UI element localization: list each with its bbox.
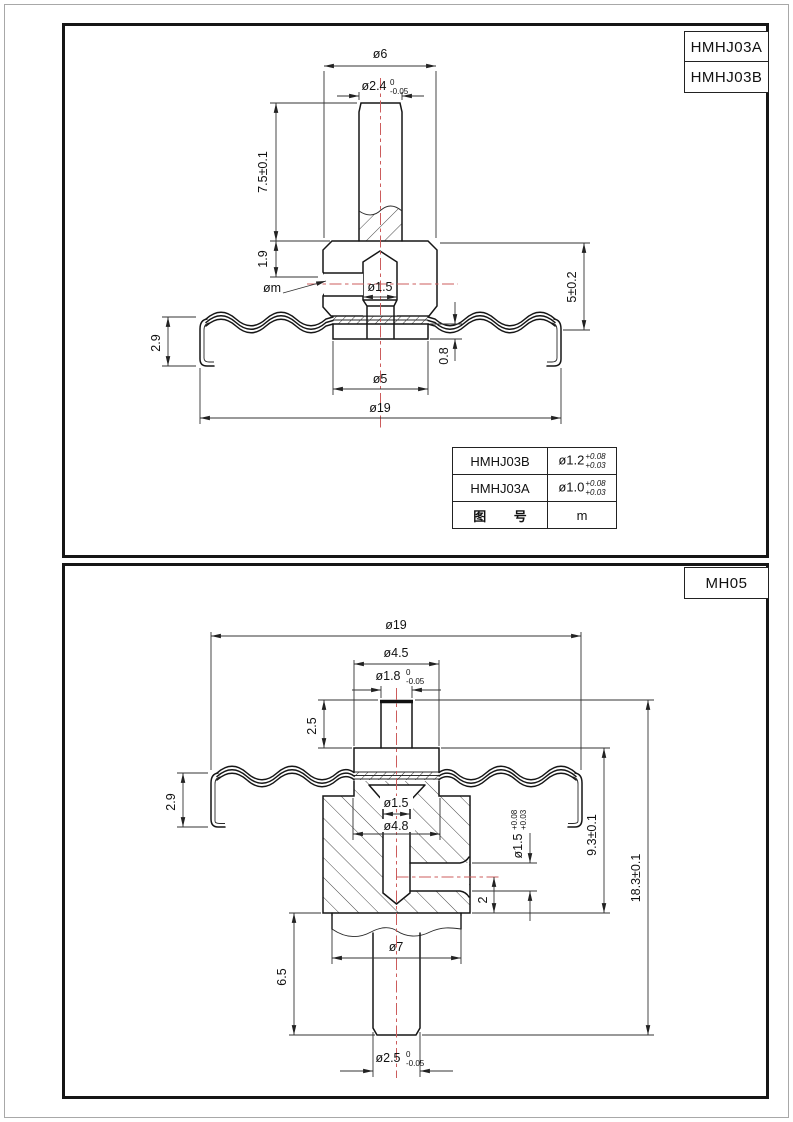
ext-lines-len29 <box>177 773 208 827</box>
dim-dia25-tol-dn: -0.05 <box>406 1059 425 1068</box>
dim-len25-label: 2.5 <box>305 717 319 734</box>
ext-lines-len75 <box>270 103 357 241</box>
disc-left-wall <box>211 773 225 827</box>
dim-dia15s-tol-up: +0.08 <box>510 809 519 830</box>
disc-right-wall-inner <box>547 323 557 362</box>
dim-dia18-tol-dn: -0.05 <box>406 677 425 686</box>
disc-right-wall-inner <box>568 777 578 824</box>
leader-diam <box>283 281 326 293</box>
dim-dia15s-group: ø1.5 +0.08 +0.03 <box>510 809 528 858</box>
dim-dia24-label: ø2.4 <box>361 79 386 93</box>
dim-dia15-label: ø1.5 <box>383 796 408 810</box>
dim-dia18-tol-up: 0 <box>406 668 411 677</box>
dim-dia48-label: ø4.8 <box>383 819 408 833</box>
dim-diam-label: øm <box>263 281 281 295</box>
dim-len93-label: 9.3±0.1 <box>585 814 599 856</box>
disc-corrugation <box>217 766 354 780</box>
disc-corrugation <box>439 766 576 780</box>
ext-lines-len25 <box>318 700 378 748</box>
ext-lines-len29 <box>162 317 196 366</box>
dim-len75-label: 7.5±0.1 <box>256 151 270 193</box>
bottom-drawing: ø19 ø4.5 ø1.8 0 -0.05 2.5 2.9 ø1.5 ø4.8 <box>164 618 654 1078</box>
technical-drawing-canvas: ø6 ø2.4 0 -0.05 7.5±0.1 1.9 øm ø1.5 5±0.… <box>0 0 793 1122</box>
dim-dia5-label: ø5 <box>373 372 388 386</box>
dim-dia19-label: ø19 <box>369 401 391 415</box>
dim-len29-label: 2.9 <box>164 793 178 810</box>
top-drawing: ø6 ø2.4 0 -0.05 7.5±0.1 1.9 øm ø1.5 5±0.… <box>149 47 590 428</box>
dim-dia25-tol-up: 0 <box>406 1050 411 1059</box>
dim-dia15s-label: ø1.5 <box>511 833 525 858</box>
dim-len19-label: 1.9 <box>256 250 270 267</box>
dim-dia15-label: ø1.5 <box>367 280 392 294</box>
dim-dia19-label: ø19 <box>385 618 407 632</box>
dim-dia25-label: ø2.5 <box>375 1051 400 1065</box>
dim-dia7-label: ø7 <box>389 940 404 954</box>
dim-dia24-tol-dn: -0.05 <box>390 87 409 96</box>
dim-dia24-tol-up: 0 <box>390 78 395 87</box>
disc-right-wall <box>568 773 582 827</box>
drawing-sheet: HMHJ03A HMHJ03B MH05 HMHJ03B ø1.2+0.08+0… <box>0 0 793 1122</box>
dim-len65-label: 6.5 <box>275 968 289 985</box>
dim-len2-label: 2 <box>476 896 490 903</box>
disc-left-wall-inner <box>215 777 225 824</box>
dim-len29-label: 2.9 <box>149 334 163 351</box>
dim-dia18-label: ø1.8 <box>375 669 400 683</box>
dim-len183-label: 18.3±0.1 <box>629 854 643 903</box>
dim-len08-label: 0.8 <box>437 347 451 364</box>
dim-dia15s-tol-dn: +0.03 <box>519 809 528 830</box>
disc-left-wall-inner <box>204 323 214 362</box>
dim-len5-label: 5±0.2 <box>565 271 579 302</box>
dim-dia6-label: ø6 <box>373 47 388 61</box>
dim-dia45-label: ø4.5 <box>383 646 408 660</box>
